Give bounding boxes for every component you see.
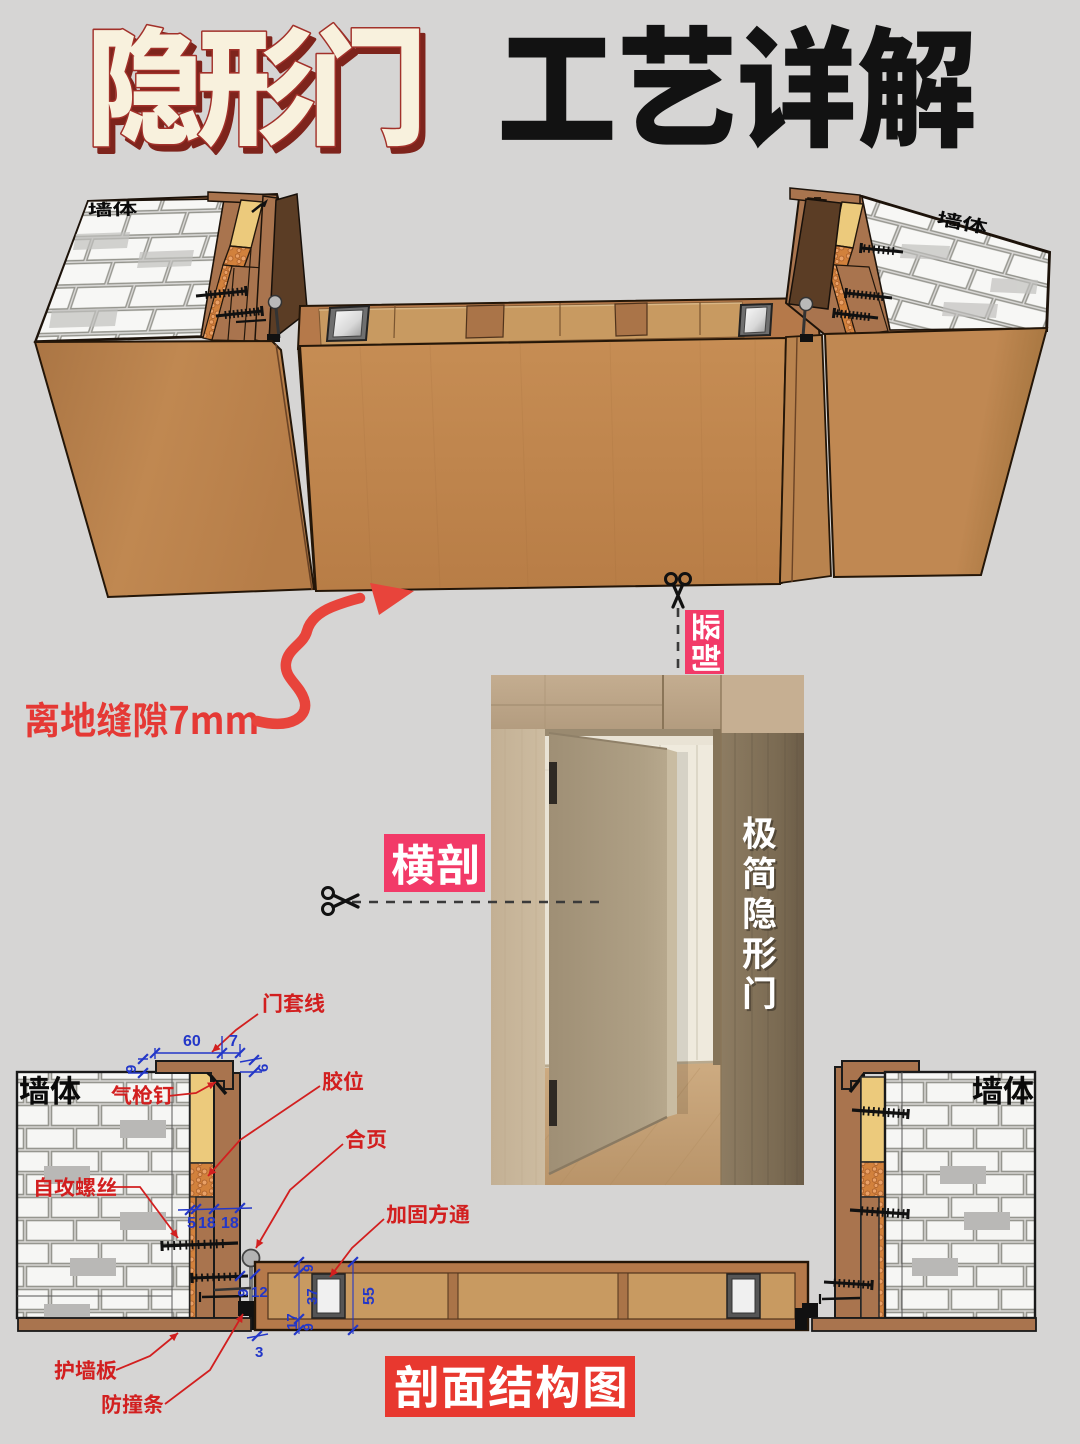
svg-text:9: 9 [235,1289,252,1297]
svg-text:5: 5 [187,1215,196,1232]
svg-text:7: 7 [229,1033,238,1050]
svg-text:18: 18 [198,1215,216,1232]
svg-text:60: 60 [183,1033,201,1050]
svg-text:9: 9 [300,1264,316,1272]
svg-text:3: 3 [255,1344,263,1361]
svg-text:9: 9 [123,1065,140,1073]
svg-text:12: 12 [251,1284,268,1301]
svg-text:18: 18 [221,1215,239,1232]
svg-text:17: 17 [284,1313,301,1330]
svg-text:55: 55 [361,1287,378,1305]
svg-text:37: 37 [304,1288,321,1305]
svg-text:9: 9 [300,1323,316,1331]
